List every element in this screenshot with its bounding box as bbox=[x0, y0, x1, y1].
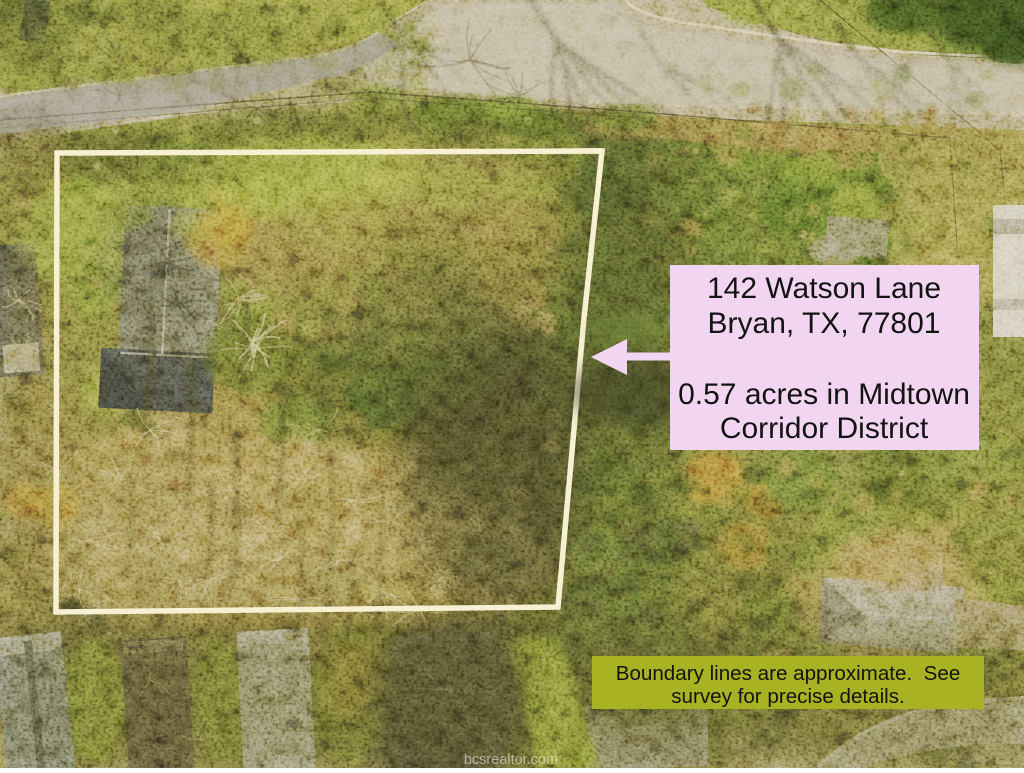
svg-text:142 Watson Lane: 142 Watson Lane bbox=[707, 272, 941, 305]
svg-text:Bryan, TX, 77801: Bryan, TX, 77801 bbox=[708, 307, 941, 340]
svg-text:Corridor District: Corridor District bbox=[720, 412, 929, 445]
svg-text:0.57 acres in Midtown: 0.57 acres in Midtown bbox=[678, 378, 970, 411]
svg-text:bcsrealtor.com: bcsrealtor.com bbox=[464, 752, 558, 768]
svg-text:Boundary lines are approximate: Boundary lines are approximate. See bbox=[616, 662, 961, 685]
svg-text:survey for precise details.: survey for precise details. bbox=[671, 685, 905, 708]
